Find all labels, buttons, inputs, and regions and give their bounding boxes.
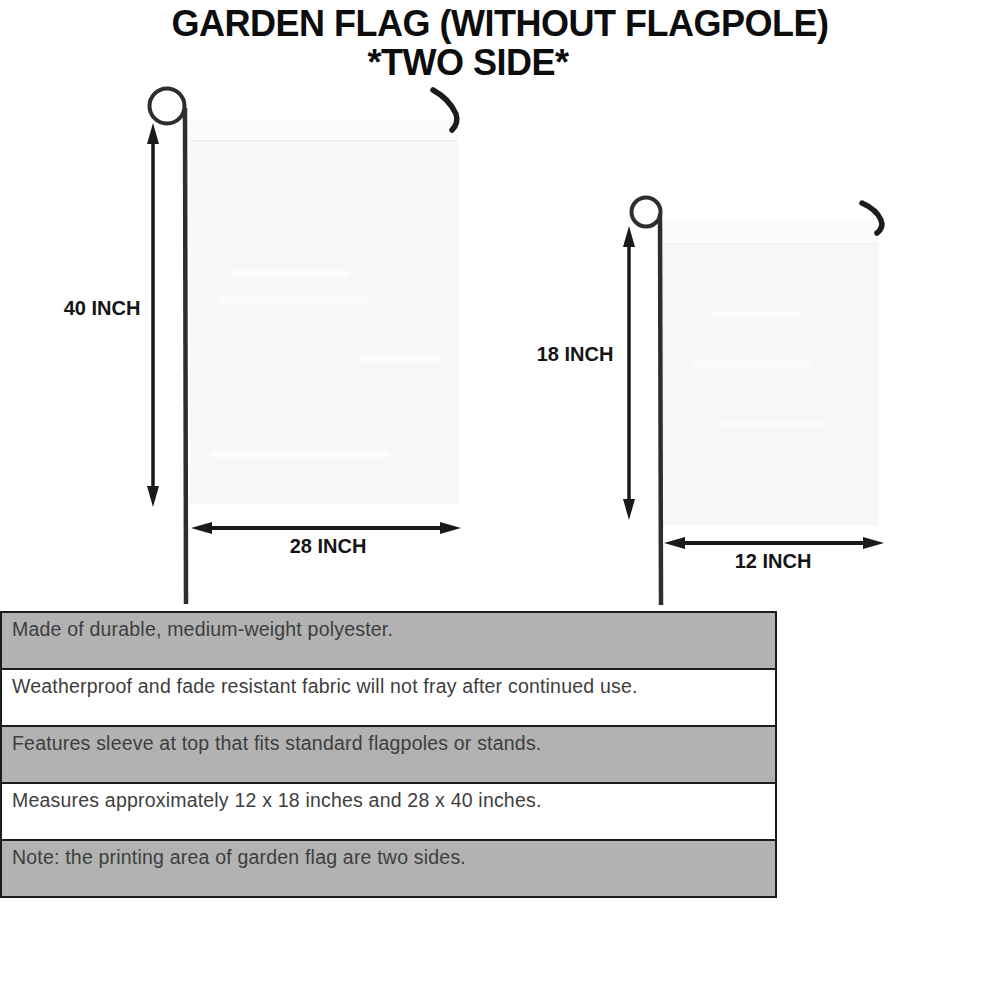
small-flag-height-label: 18 INCH: [537, 343, 614, 366]
fabric-crease: [712, 311, 802, 317]
large-flagpole: [150, 89, 187, 605]
feature-row: Features sleeve at top that fits standar…: [2, 725, 775, 782]
title-line-1: GARDEN FLAG (WITHOUT FLAGPOLE): [0, 5, 1000, 44]
fabric-crease: [210, 450, 390, 458]
garden-flag-infographic: GARDEN FLAG (WITHOUT FLAGPOLE) *TWO SIDE…: [0, 0, 1000, 1000]
small-flag-height-arrow: [623, 226, 635, 520]
fabric-crease: [692, 361, 812, 367]
pole-rod: [660, 214, 661, 605]
page-title: GARDEN FLAG (WITHOUT FLAGPOLE) *TWO SIDE…: [0, 5, 1000, 82]
features-table: Made of durable, medium-weight polyester…: [0, 611, 777, 898]
feature-row: Measures approximately 12 x 18 inches an…: [2, 782, 775, 839]
fabric-crease: [218, 296, 368, 302]
large-flag-width-arrow: [191, 522, 461, 534]
fabric-crease: [358, 356, 440, 362]
pole-loop-icon: [632, 198, 661, 227]
small-flag-sleeve: [662, 221, 878, 244]
large-flag-sleeve: [190, 120, 458, 141]
large-flag: [190, 120, 458, 504]
large-flag-height-label: 40 INCH: [64, 297, 141, 320]
pole-loop-icon: [150, 89, 185, 124]
feature-row: Weatherproof and fade resistant fabric w…: [2, 668, 775, 725]
small-flag-width-arrow: [664, 537, 884, 549]
title-line-2: *TWO SIDE*: [0, 44, 936, 83]
feature-text: Measures approximately 12 x 18 inches an…: [12, 789, 542, 812]
feature-text: Note: the printing area of garden flag a…: [12, 846, 466, 869]
feature-text: Made of durable, medium-weight polyester…: [12, 618, 393, 641]
fabric-crease: [230, 270, 350, 278]
feature-row: Made of durable, medium-weight polyester…: [2, 613, 775, 668]
pole-rod: [185, 108, 186, 604]
small-flag-width-label: 12 INCH: [735, 550, 812, 573]
small-flagpole: [632, 198, 662, 606]
feature-text: Weatherproof and fade resistant fabric w…: [12, 675, 638, 698]
feature-row: Note: the printing area of garden flag a…: [2, 839, 775, 896]
fabric-crease: [722, 421, 822, 427]
large-flag-height-arrow: [147, 123, 159, 507]
small-flag: [662, 221, 878, 525]
large-flag-width-label: 28 INCH: [290, 535, 367, 558]
feature-text: Features sleeve at top that fits standar…: [12, 732, 541, 755]
